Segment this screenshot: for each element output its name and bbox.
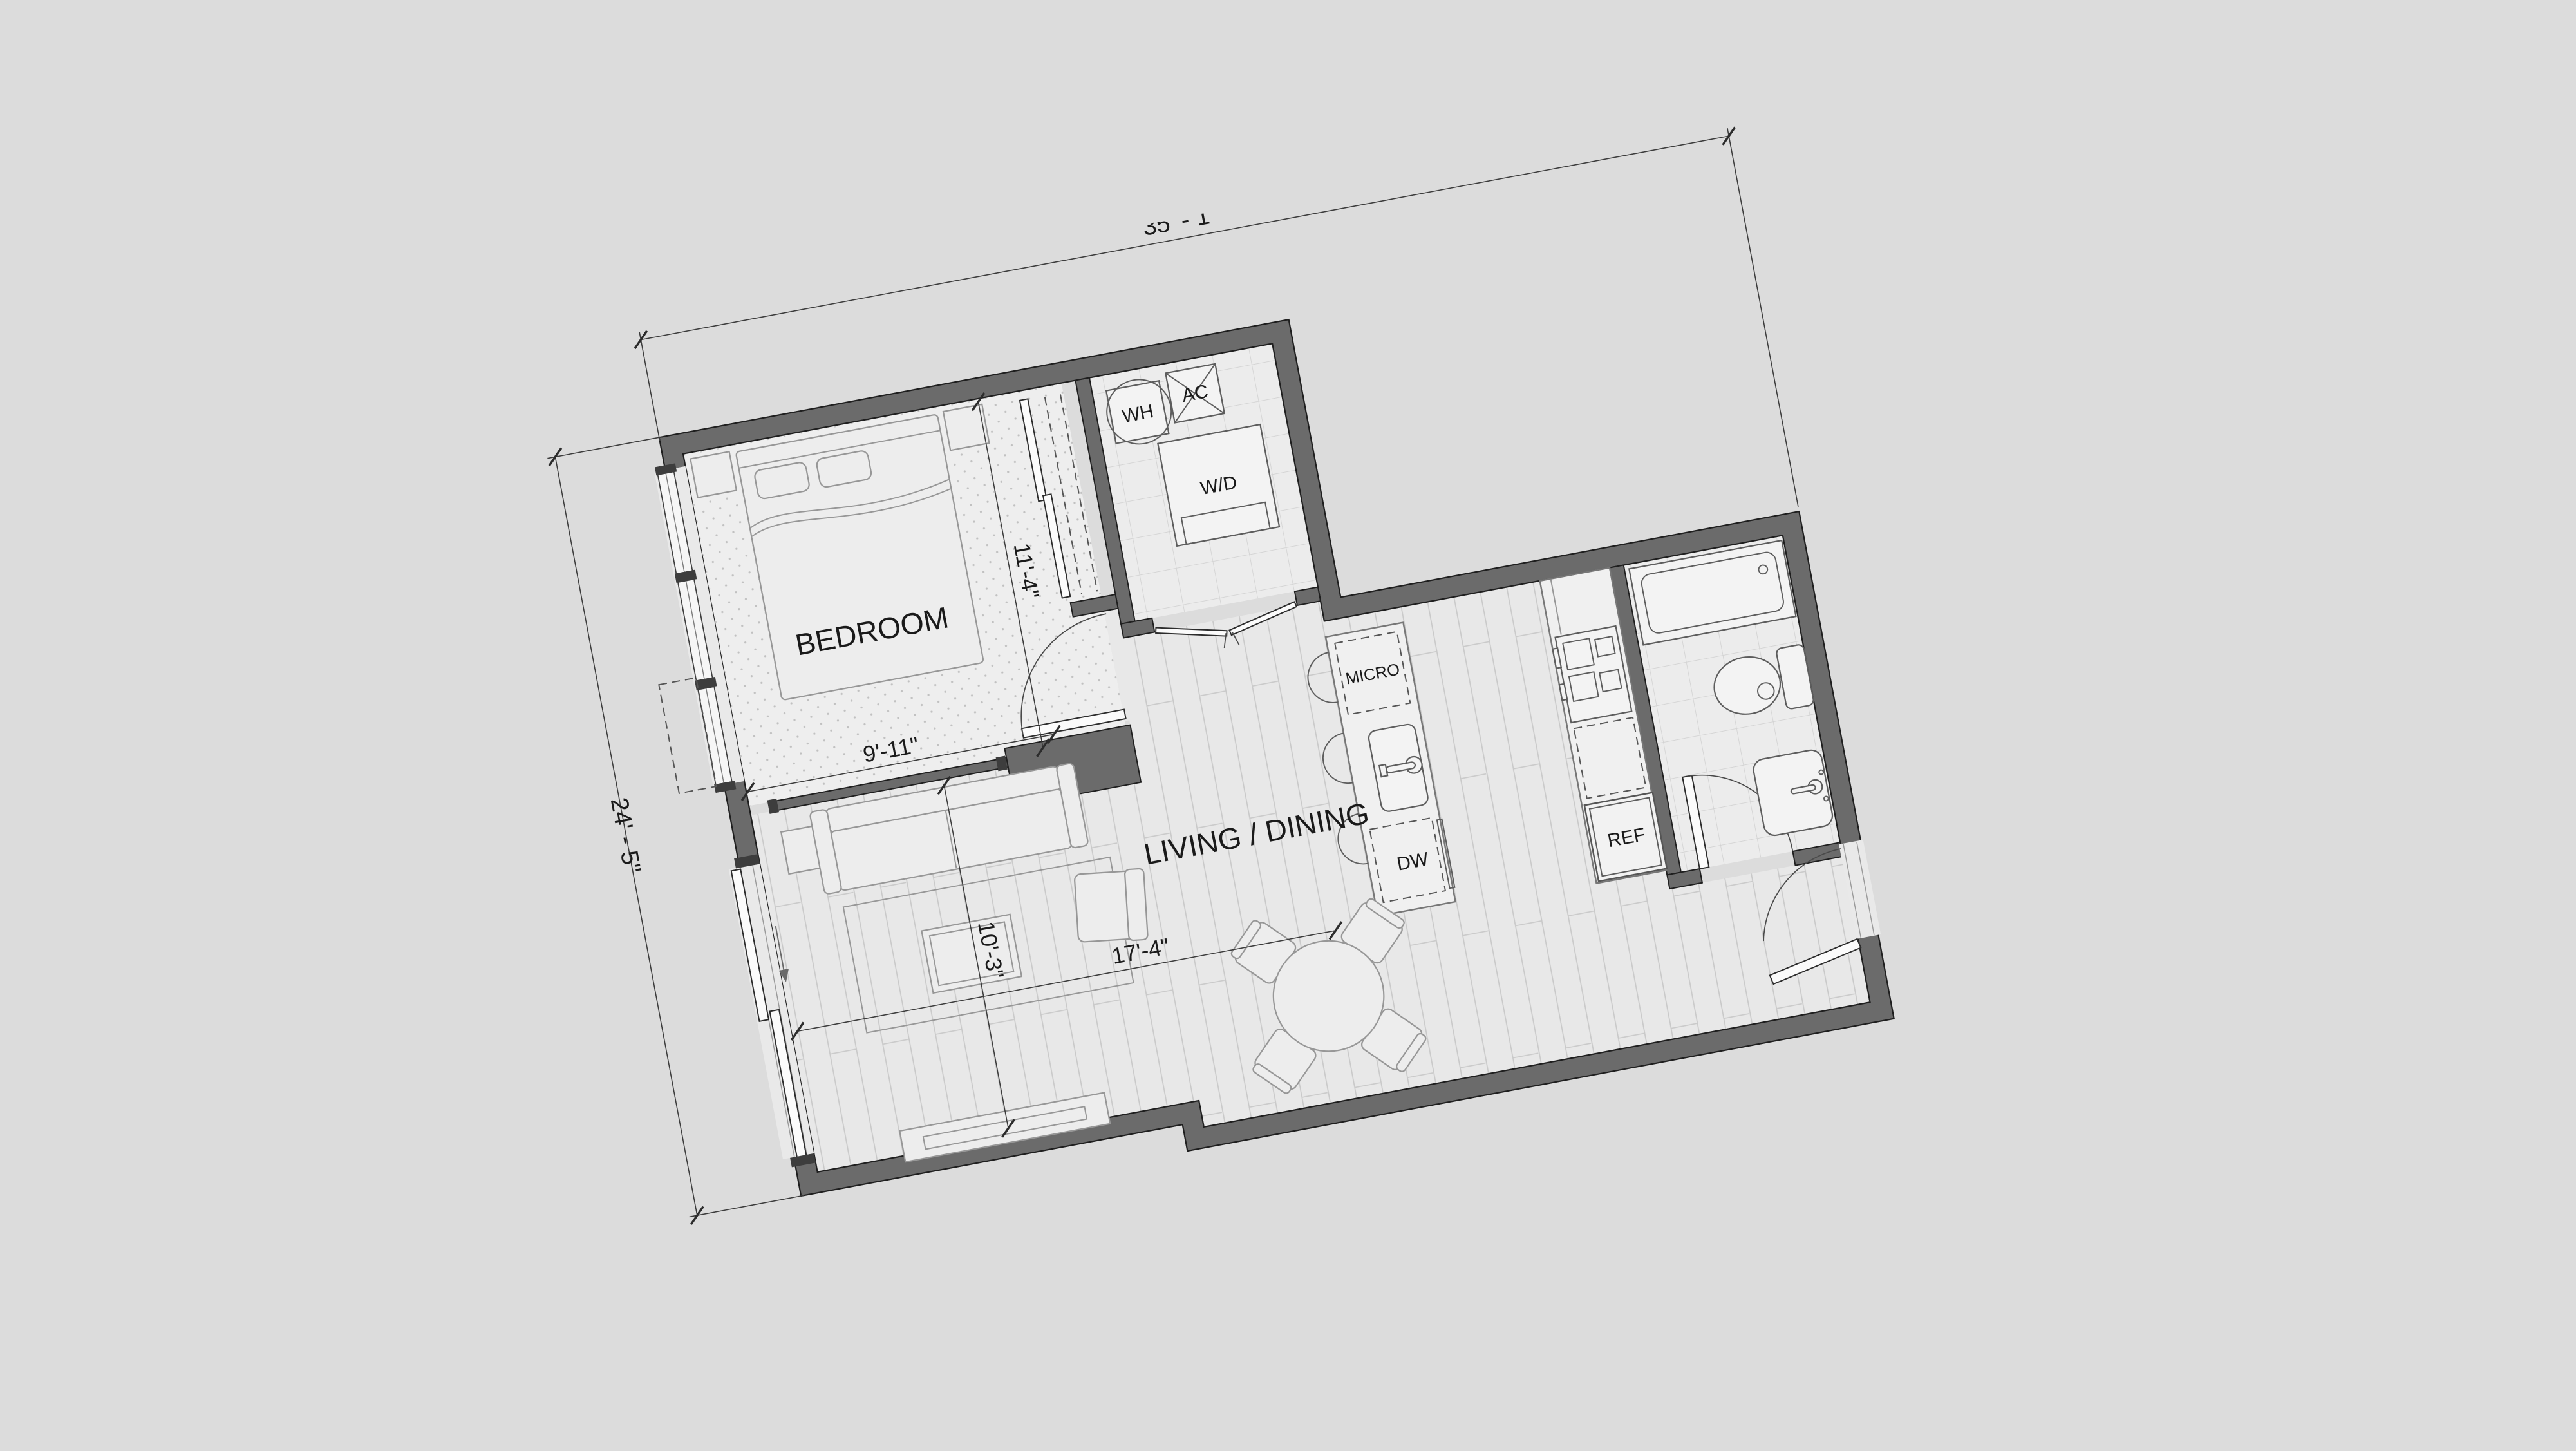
floor-plan: 35' - 1" 24' - 5" 11'-4" 9'-11"	[494, 112, 1922, 1296]
bathroom-sink	[1752, 748, 1834, 837]
armchair	[1074, 869, 1148, 944]
screenshot-canvas: 35' - 1" 24' - 5" 11'-4" 9'-11"	[0, 0, 2576, 1451]
dim-overall-height-label: 24' - 5"	[605, 795, 646, 875]
nightstand-left	[690, 451, 736, 497]
floor-plan-rotated-container: 35' - 1" 24' - 5" 11'-4" 9'-11"	[494, 112, 1922, 1296]
nightstand-right	[943, 404, 989, 450]
dim-overall-width-label: 35' - 1"	[1140, 200, 1220, 242]
